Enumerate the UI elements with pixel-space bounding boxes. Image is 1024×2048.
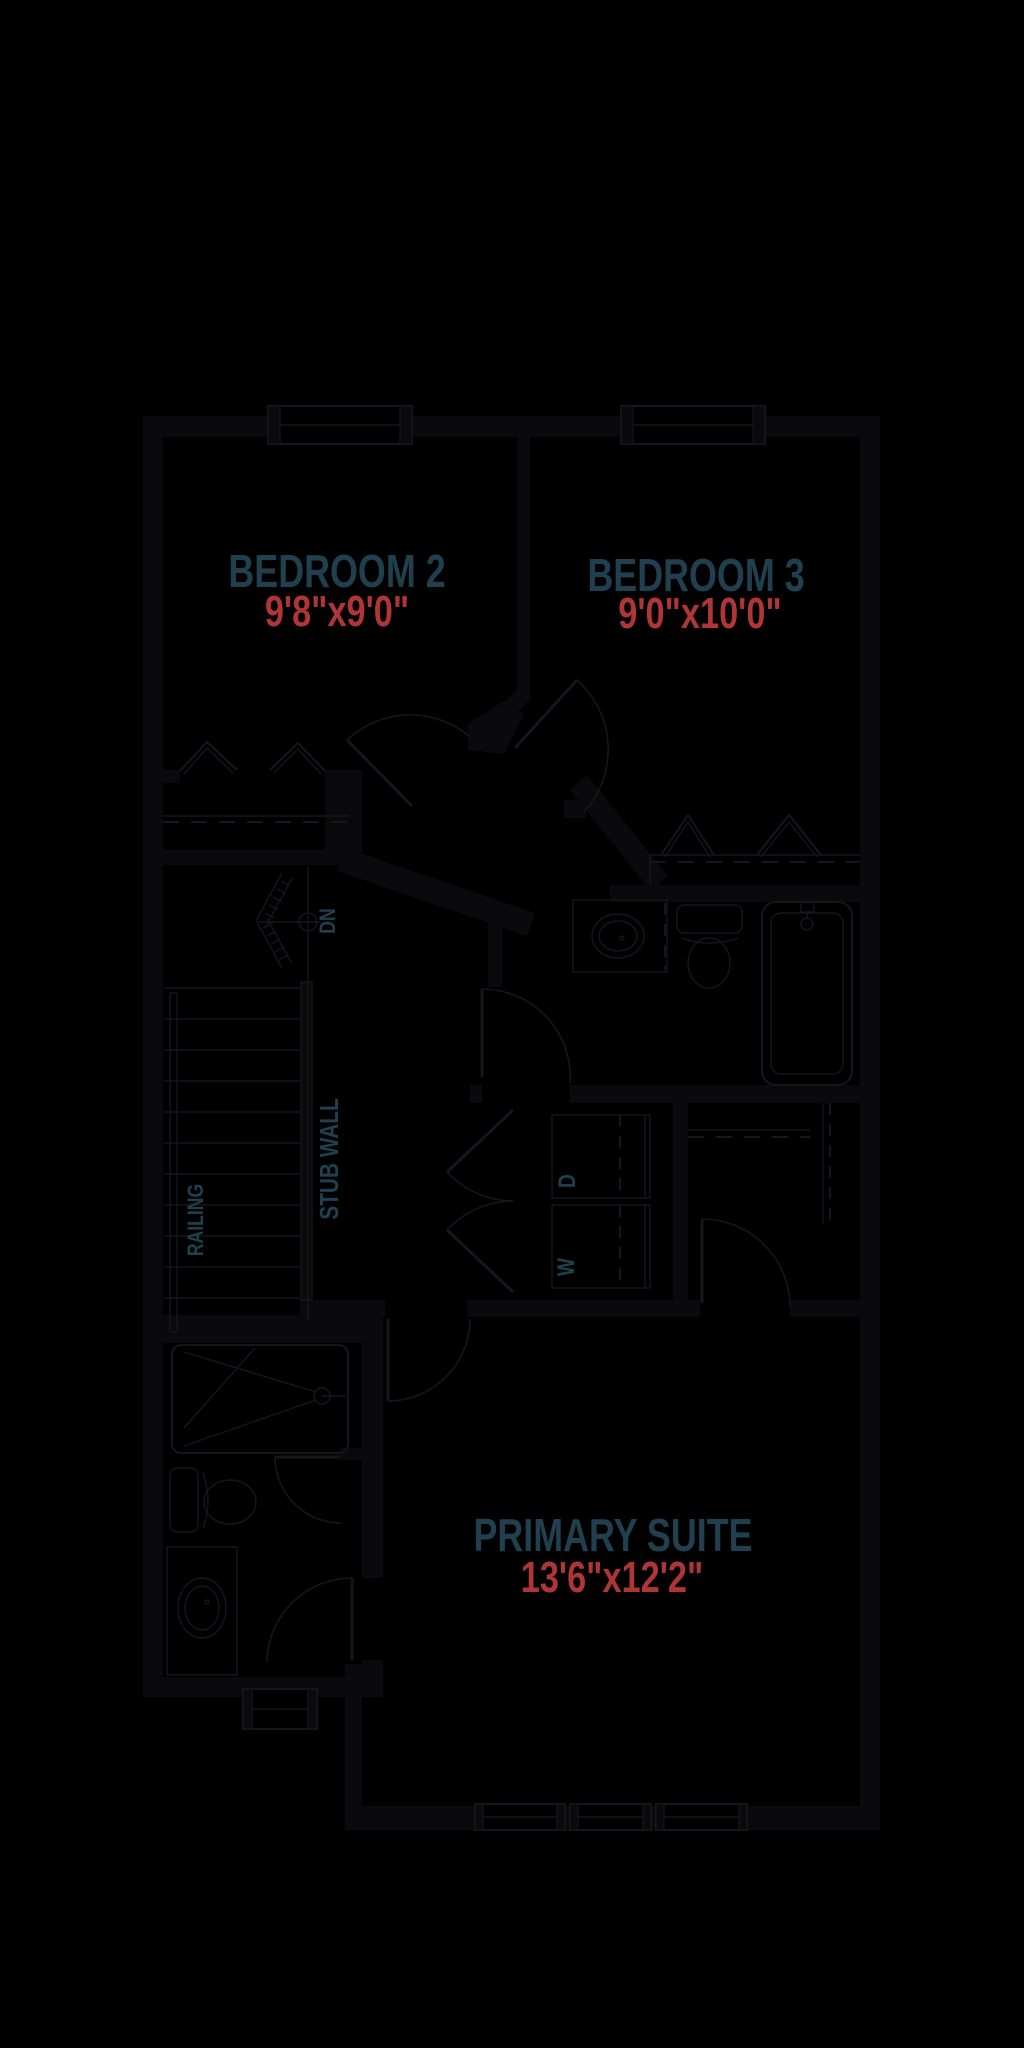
wall-bedroom-divider [517, 437, 530, 692]
wall-bath-south-b [570, 1085, 880, 1103]
stairs [164, 866, 320, 1332]
ensuite-bathroom [167, 1345, 348, 1675]
bifold-door-icon [661, 815, 714, 855]
bedroom2-dimensions: 9'8"x9'0" [265, 590, 409, 634]
bathtub [762, 902, 852, 1085]
wall-laundry-closet-divider [673, 1103, 688, 1300]
stub-wall-label: STUB WALL [316, 1098, 342, 1219]
windows-primary-suite [475, 1804, 747, 1830]
bifold-door-icon [180, 742, 237, 771]
wall-ensuite-east-upper [362, 1317, 383, 1578]
wall-ensuite-partition-jamb [340, 1448, 362, 1460]
stub-wall-shape [301, 982, 312, 1300]
laundry-doors [447, 1110, 513, 1292]
wall-hall-diagonal-west [337, 848, 535, 936]
window-ensuite [243, 1689, 317, 1729]
floor-plan-drawing [0, 0, 1024, 2048]
railing-line [170, 993, 177, 1332]
wall-closet2-bottom [143, 850, 362, 865]
primary-suite-door [388, 1319, 470, 1401]
stairs-down-label: DN [317, 908, 339, 933]
shower [172, 1345, 348, 1453]
wall-hall-bottom-c [790, 1300, 880, 1317]
walkin-closet [688, 1103, 830, 1226]
primary-suite-dimensions: 13'6"x12'2" [521, 1556, 703, 1600]
wall-hall-bottom-a [300, 1300, 385, 1317]
bedroom3-dimensions: 9'0"x10'0" [618, 592, 781, 636]
primary-suite-name: PRIMARY SUITE [473, 1512, 752, 1558]
wall-closet2-front-left [143, 770, 180, 783]
ensuite-partition-door [275, 1457, 341, 1523]
bifold-door-icon [270, 743, 325, 771]
stair-break-line [256, 873, 292, 968]
wall-bath-south-a [470, 1085, 482, 1103]
vanity-sink [167, 1547, 237, 1675]
bedroom3-closet [650, 815, 860, 885]
wall-top [143, 416, 880, 437]
dryer-label: D [556, 1174, 580, 1188]
toilet [677, 905, 742, 988]
wall-hall-diagonal-east [570, 775, 668, 891]
bedroom2-closet [163, 742, 350, 822]
wall-ensuite-top [143, 1315, 383, 1343]
wall-ensuite-east-lower [362, 1660, 383, 1697]
ensuite-entry-door [267, 1578, 352, 1662]
wall-connector [345, 1664, 362, 1810]
bathroom-door [482, 989, 570, 1083]
main-bathroom [573, 900, 852, 1085]
window-bedroom2 [268, 406, 412, 444]
floor-plan-canvas: BEDROOM 2 9'8"x9'0" BEDROOM 3 9'0"x10'0"… [0, 0, 1024, 2048]
walkin-closet-door [702, 1219, 790, 1307]
railing-label: RAILING [185, 1184, 207, 1256]
window-bedroom3 [621, 406, 765, 444]
wall-hall-bottom-b [467, 1300, 700, 1317]
bedroom2-door [347, 715, 470, 806]
washer-label: W [555, 1258, 579, 1276]
wall-bed3-door-jamb [564, 800, 586, 818]
wall-left [143, 416, 163, 1697]
wall-bath-west [488, 903, 502, 987]
toilet [170, 1468, 256, 1532]
vanity-sink [573, 900, 667, 972]
wall-right [860, 416, 880, 1830]
